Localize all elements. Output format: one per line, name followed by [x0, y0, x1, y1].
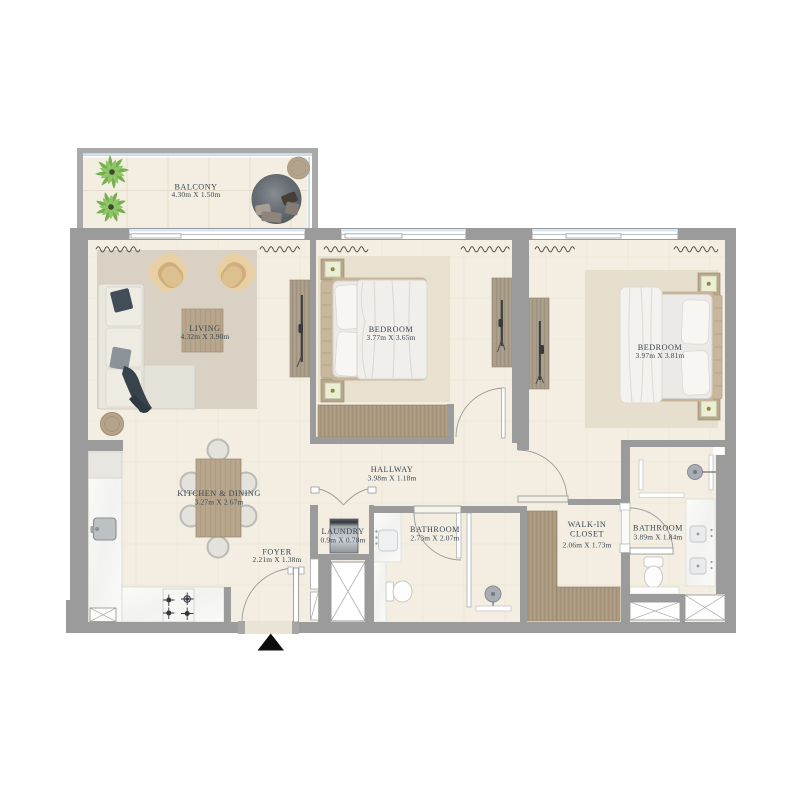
svg-text:2.21m X 1.38m: 2.21m X 1.38m — [253, 555, 302, 564]
svg-text:3.27m X 2.67m: 3.27m X 2.67m — [195, 498, 244, 507]
svg-text:2.73m X 2.07m: 2.73m X 2.07m — [411, 534, 460, 543]
svg-text:CLOSET: CLOSET — [570, 530, 604, 539]
svg-text:3.98m X 1.18m: 3.98m X 1.18m — [368, 474, 417, 483]
svg-text:3.77m X 3.65m: 3.77m X 3.65m — [367, 333, 416, 342]
svg-text:4.32m X 3.90m: 4.32m X 3.90m — [181, 332, 230, 341]
svg-text:WALK-IN: WALK-IN — [568, 520, 607, 529]
svg-text:2.06m X 1.73m: 2.06m X 1.73m — [563, 541, 612, 550]
svg-text:3.97m X 3.81m: 3.97m X 3.81m — [636, 351, 685, 360]
svg-text:0.9m X 0.78m: 0.9m X 0.78m — [320, 536, 365, 545]
svg-text:BATHROOM: BATHROOM — [633, 524, 683, 533]
svg-text:3.89m X 1.84m: 3.89m X 1.84m — [634, 533, 683, 542]
svg-text:4.30m X 1.50m: 4.30m X 1.50m — [172, 190, 221, 199]
